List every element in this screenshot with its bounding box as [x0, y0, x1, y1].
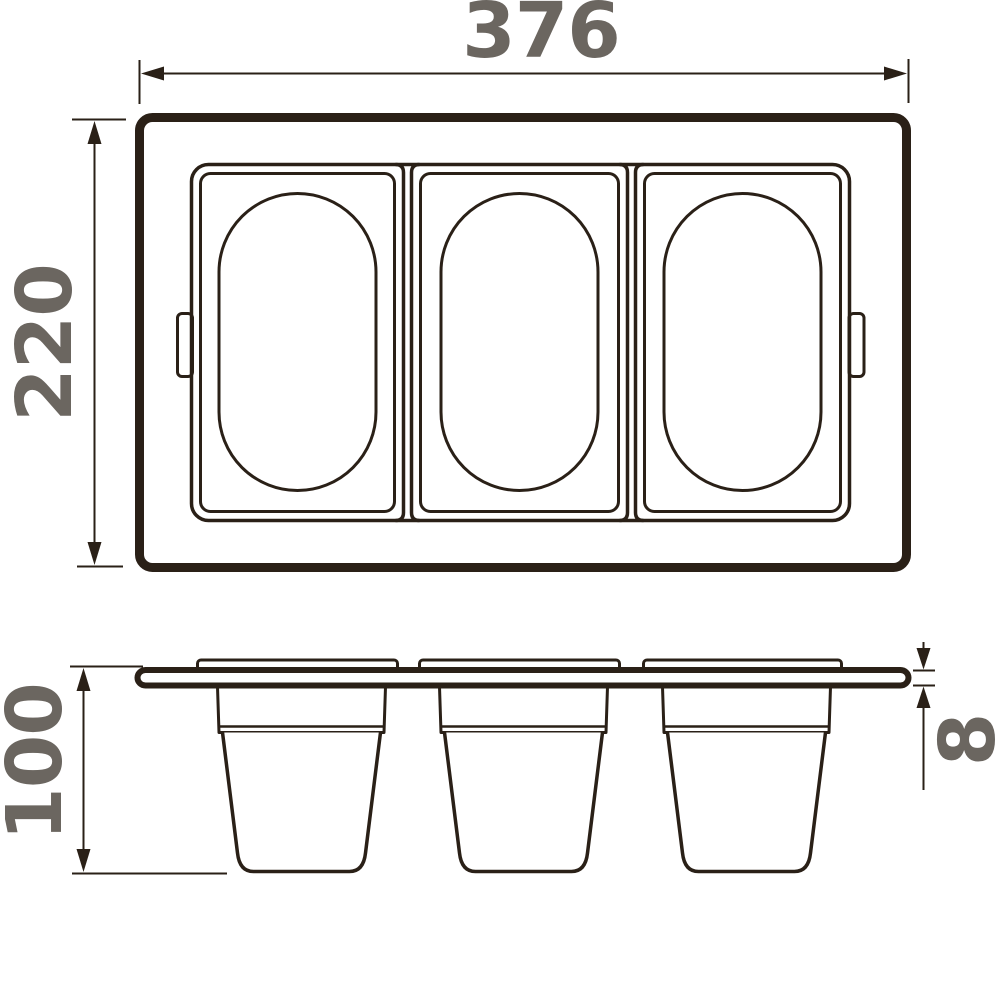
- tray-insert-drawing: 376 220: [0, 0, 1000, 1000]
- basket-3-body: [668, 733, 826, 872]
- basket-3-opening: [664, 194, 821, 491]
- compartment-3-inner-rim: [645, 174, 841, 512]
- depth-arrowhead-top: [88, 121, 102, 144]
- basket-block-outline: [192, 165, 850, 521]
- divider-2-right-line: [636, 165, 644, 521]
- tray-frame-outline: [140, 118, 907, 568]
- dimension-thickness: 8: [913, 642, 1000, 790]
- thickness-dimension-label: 8: [924, 714, 1000, 767]
- height-dimension-label: 100: [0, 683, 80, 841]
- divider-1-right-line: [412, 165, 420, 521]
- basket-2-profile: [440, 687, 608, 872]
- depth-dimension-label: 220: [1, 264, 90, 422]
- top-view: [140, 118, 907, 568]
- basket-3-profile: [663, 687, 831, 872]
- depth-arrowhead-bottom: [88, 542, 102, 565]
- technical-drawing-canvas: 376 220: [0, 0, 1000, 1000]
- basket-1-profile: [218, 687, 386, 872]
- width-dimension-label: 376: [462, 0, 620, 76]
- basket-2-opening: [441, 194, 598, 491]
- tray-plate-profile: [138, 670, 909, 686]
- dimension-depth: 220: [1, 120, 126, 567]
- height-arrowhead-bottom: [77, 849, 91, 872]
- basket-1-opening: [219, 194, 376, 491]
- compartment-2-inner-rim: [421, 174, 619, 512]
- width-arrowhead-right: [884, 67, 907, 81]
- divider-2-left-line: [620, 165, 628, 521]
- thickness-arrowhead-top: [917, 648, 931, 670]
- thickness-arrowhead-bottom: [917, 687, 931, 709]
- side-view: [138, 660, 909, 872]
- basket-2-body: [445, 733, 603, 872]
- width-arrowhead-left: [141, 67, 164, 81]
- dimension-width: 376: [140, 0, 909, 104]
- dimension-height: 100: [0, 667, 227, 874]
- divider-1-left-line: [396, 165, 404, 521]
- basket-1-body: [223, 733, 381, 872]
- compartment-1-inner-rim: [201, 174, 395, 512]
